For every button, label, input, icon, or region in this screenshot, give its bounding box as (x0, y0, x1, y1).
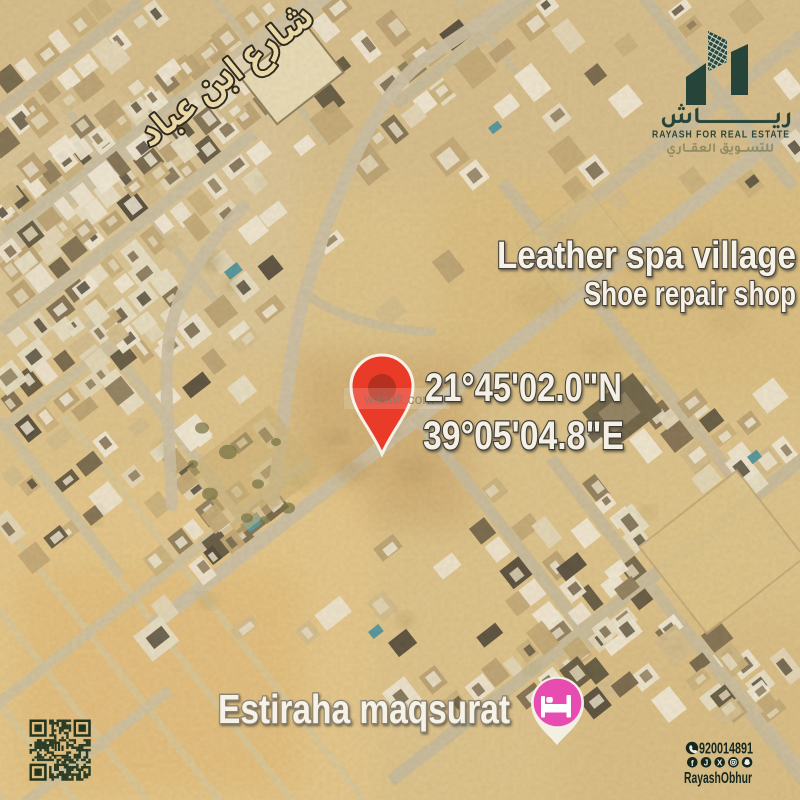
svg-text:RayashObhur: RayashObhur (684, 770, 752, 787)
svg-text:Shoe repair shop: Shoe repair shop (584, 275, 796, 312)
svg-text:39°05'04.8"E: 39°05'04.8"E (423, 414, 624, 458)
svg-text:RAYASH FOR REAL ESTATE: RAYASH FOR REAL ESTATE (652, 129, 790, 141)
svg-text:X: X (717, 758, 723, 767)
svg-text:wasalt.com: wasalt.com (363, 391, 434, 407)
svg-text:f: f (691, 758, 694, 768)
svg-text:J: J (704, 759, 708, 768)
svg-text:Estiraha maqsurat: Estiraha maqsurat (218, 686, 510, 732)
svg-text:21°45'02.0"N: 21°45'02.0"N (425, 366, 622, 410)
svg-text:920014891: 920014891 (699, 741, 753, 758)
svg-text:Leather spa village: Leather spa village (497, 235, 796, 277)
